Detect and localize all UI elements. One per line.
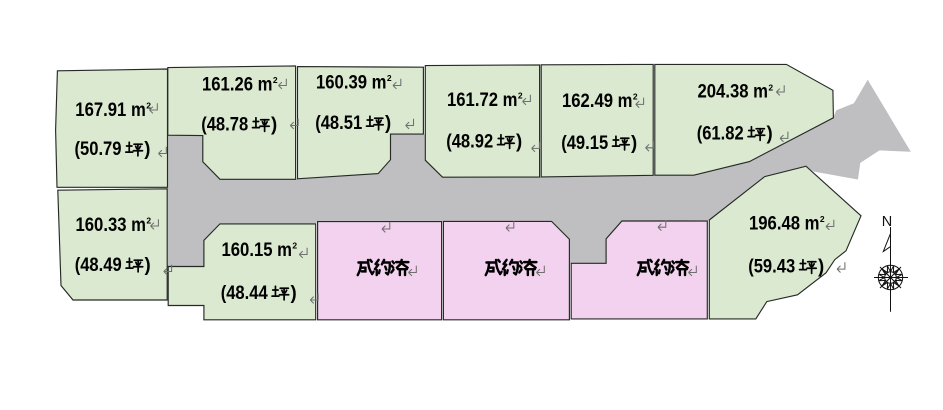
svg-text:(48.51: (48.51 (315, 113, 362, 134)
svg-text:): ) (516, 132, 522, 153)
svg-text:167.91 m: 167.91 m (75, 100, 146, 121)
svg-text:): ) (291, 283, 297, 304)
svg-text:2: 2 (292, 241, 297, 251)
svg-text:2: 2 (146, 216, 151, 226)
svg-text:(61.82: (61.82 (697, 124, 744, 145)
svg-text:160.15 m: 160.15 m (222, 240, 293, 261)
svg-text:160.39 m: 160.39 m (316, 73, 387, 94)
svg-text:2: 2 (518, 91, 523, 101)
svg-text:2: 2 (273, 75, 278, 85)
svg-text:): ) (818, 257, 824, 278)
svg-text:2: 2 (820, 214, 825, 224)
svg-text:(48.49: (48.49 (75, 255, 122, 276)
svg-text:161.72 m: 161.72 m (447, 90, 518, 111)
svg-text:204.38 m: 204.38 m (698, 82, 769, 103)
svg-text:2: 2 (768, 82, 773, 92)
svg-text:(59.43: (59.43 (748, 257, 795, 278)
svg-text:): ) (385, 113, 391, 134)
svg-text:): ) (631, 133, 637, 154)
svg-text:): ) (767, 124, 773, 145)
svg-text:161.26 m: 161.26 m (202, 75, 273, 96)
svg-text:): ) (144, 139, 150, 160)
svg-text:): ) (145, 255, 151, 276)
svg-text:N: N (882, 214, 892, 230)
svg-text:2: 2 (387, 73, 392, 83)
svg-text:(48.44: (48.44 (221, 283, 268, 304)
svg-text:2: 2 (633, 92, 638, 102)
svg-text:160.33 m: 160.33 m (76, 215, 147, 236)
svg-text:): ) (271, 115, 277, 136)
svg-text:(50.79: (50.79 (75, 139, 122, 160)
svg-text:(48.78: (48.78 (201, 115, 248, 136)
svg-text:(49.15: (49.15 (561, 133, 608, 154)
svg-text:(48.92: (48.92 (446, 132, 493, 153)
svg-text:162.49 m: 162.49 m (562, 91, 633, 112)
svg-text:196.48 m: 196.48 m (749, 214, 820, 235)
